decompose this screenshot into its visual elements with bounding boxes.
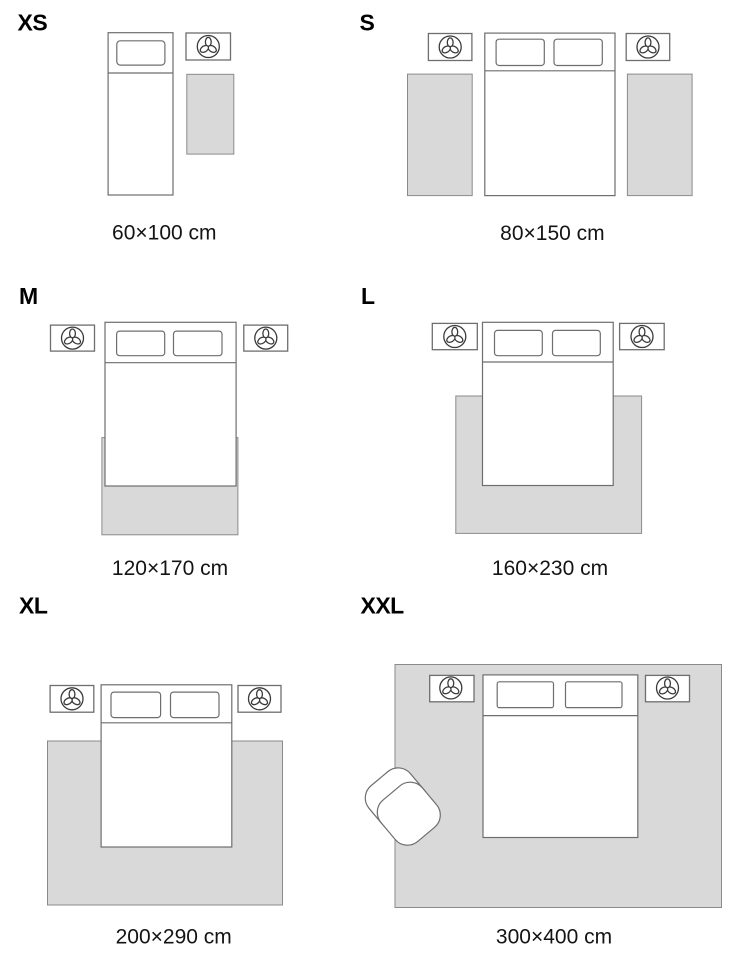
svg-text:XS: XS — [18, 9, 48, 35]
svg-text:XXL: XXL — [361, 593, 405, 619]
svg-text:60×100 cm: 60×100 cm — [112, 221, 217, 244]
svg-text:120×170 cm: 120×170 cm — [112, 557, 228, 580]
svg-text:200×290 cm: 200×290 cm — [116, 925, 232, 948]
svg-text:160×230 cm: 160×230 cm — [492, 557, 608, 580]
svg-text:XL: XL — [19, 593, 48, 619]
svg-text:300×400 cm: 300×400 cm — [496, 925, 612, 948]
svg-text:L: L — [361, 283, 375, 309]
svg-text:80×150 cm: 80×150 cm — [500, 222, 605, 245]
svg-text:S: S — [360, 9, 375, 35]
svg-text:M: M — [19, 283, 38, 309]
